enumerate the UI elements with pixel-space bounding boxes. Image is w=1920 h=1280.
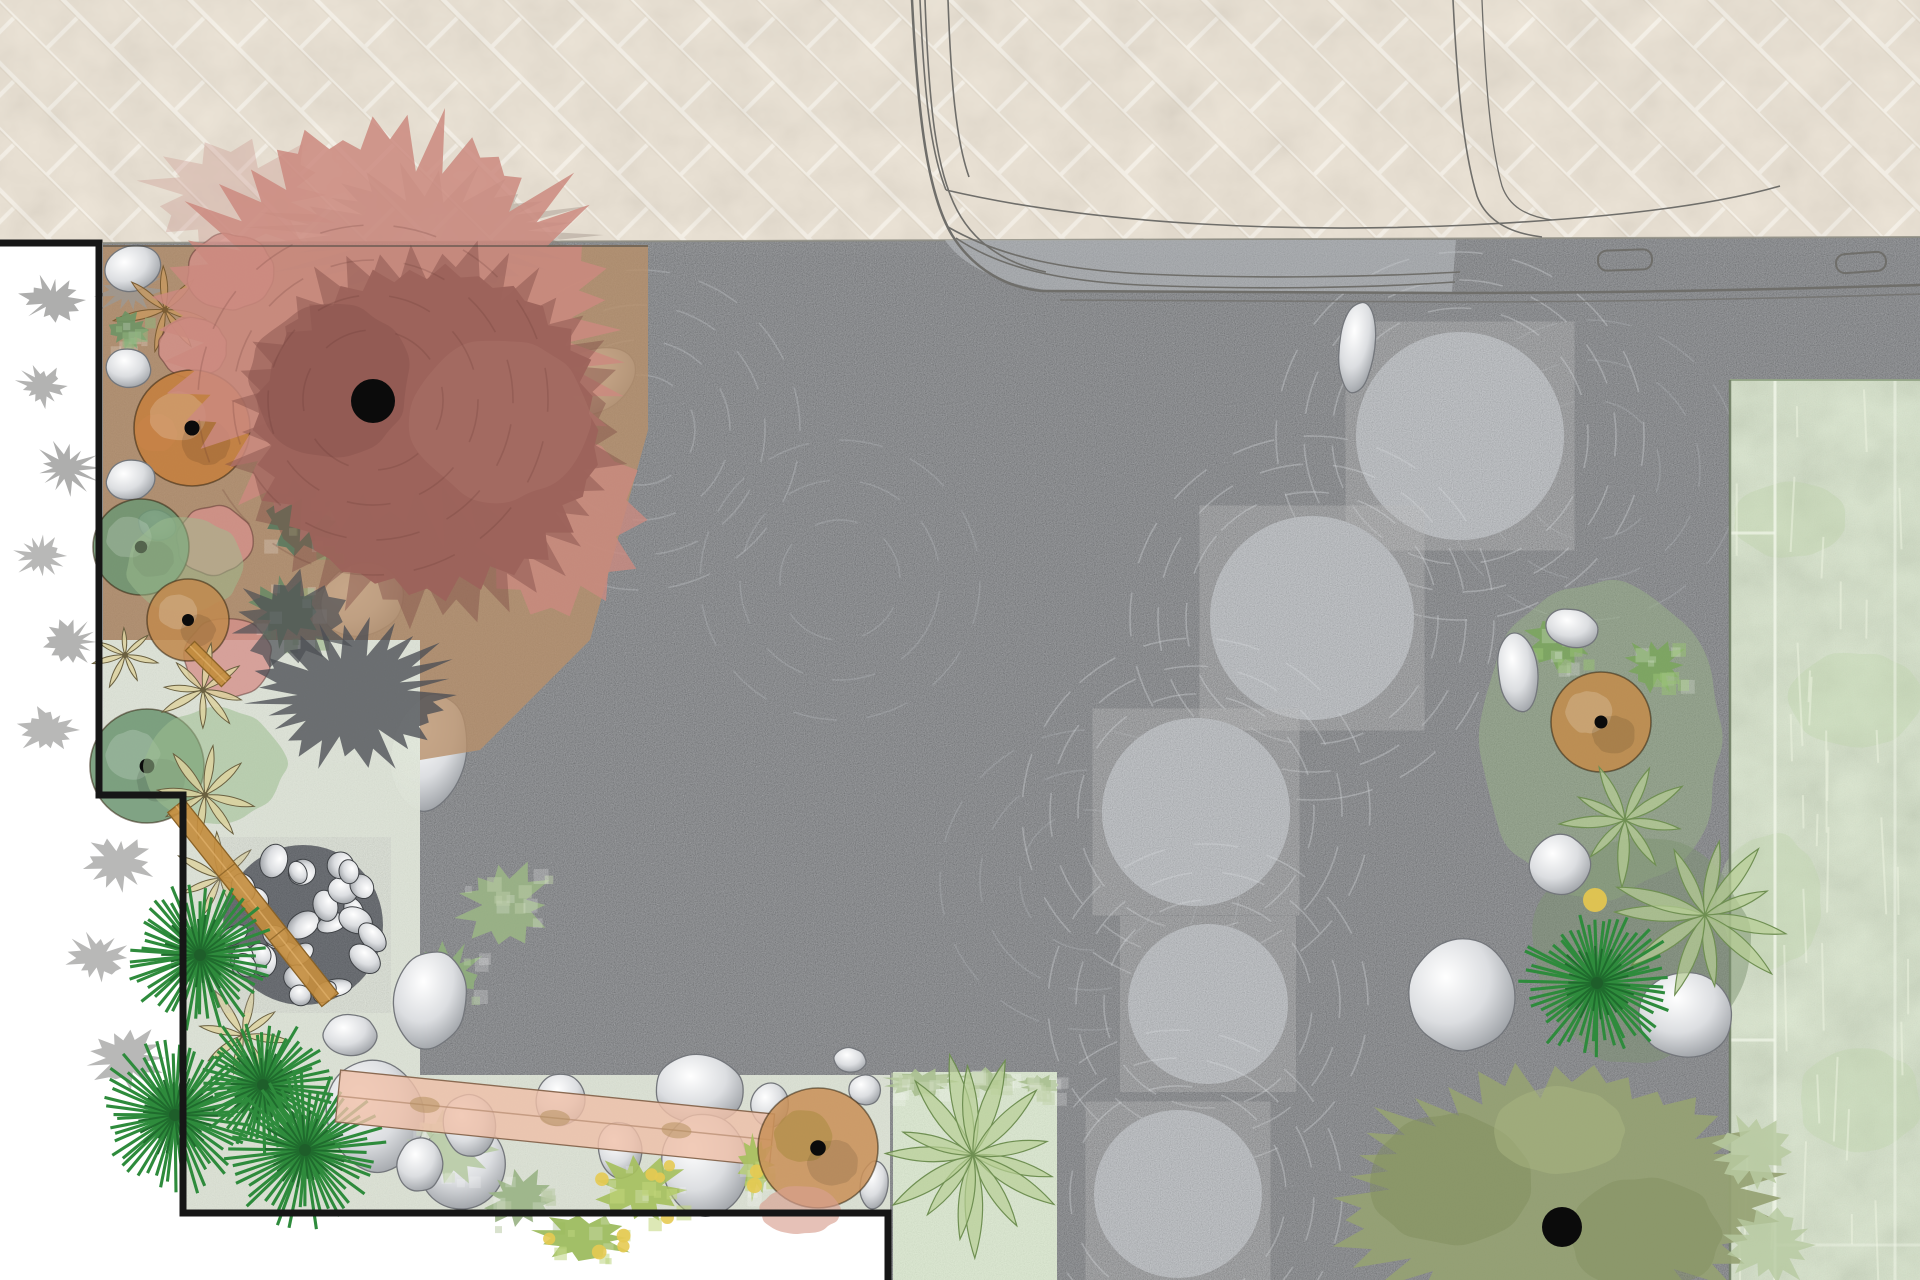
landscape-plan-canvas	[0, 0, 1920, 1280]
stepping-pad	[1356, 332, 1564, 540]
plan-paint-root	[0, 0, 1920, 1280]
stepping-pad	[1094, 1110, 1262, 1278]
boulder	[323, 1015, 377, 1056]
stepping-pad	[1102, 718, 1290, 906]
olive-trunk-dot	[1542, 1207, 1582, 1247]
car-bumper-band	[945, 240, 1456, 292]
screenshot-root	[0, 0, 1920, 1280]
stepping-pad	[1210, 516, 1414, 720]
canopy-plant-tan	[1551, 672, 1651, 772]
accent-flower-dot	[1583, 888, 1607, 912]
maple-trunk-dot	[351, 379, 395, 423]
